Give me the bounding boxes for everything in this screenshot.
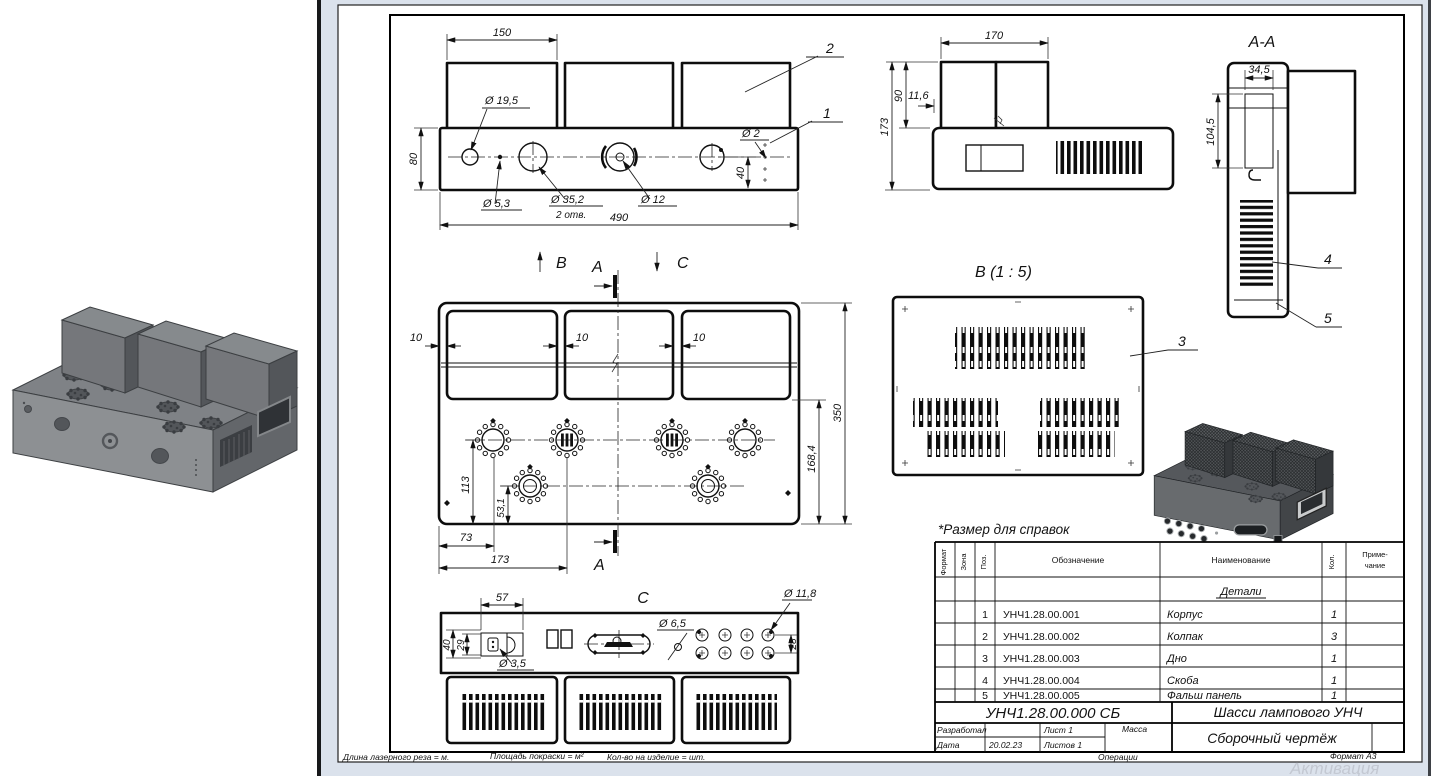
dim-gap1: 10	[410, 332, 423, 344]
date-value: 20.02.23	[988, 740, 1022, 750]
dim-34-5: 34,5	[1248, 64, 1270, 76]
section-aa-title: A-A	[1248, 34, 1276, 51]
dim-104-5: 104,5	[1205, 117, 1217, 145]
callout-5: 5	[1324, 310, 1332, 326]
callout-4: 4	[1324, 251, 1332, 267]
dim-150: 150	[493, 27, 512, 39]
watermark: Активация	[1289, 759, 1379, 776]
col-qty: Кол.	[1327, 555, 1336, 570]
dim-490: 490	[610, 212, 629, 224]
drawing-sheet-svg: 150 80 490 40 Ø 19,5 Ø 5,3 Ø 35,2 2 отв.…	[321, 0, 1431, 776]
row2-pos: 2	[982, 631, 988, 643]
dim-57: 57	[496, 592, 509, 604]
mass-label: Масса	[1122, 724, 1147, 734]
view-b-title: B (1 : 5)	[975, 264, 1032, 281]
dim-40-rear: 40	[442, 639, 453, 651]
product-render-3d	[0, 0, 321, 776]
footer-laser: Длина лазерного реза = м.	[342, 752, 449, 762]
row3-pos: 3	[982, 653, 988, 665]
footer-strip: Длина лазерного реза = м. Площадь покрас…	[342, 751, 705, 762]
mark-a-bottom: A	[593, 557, 605, 574]
row3-designation: УНЧ1.28.00.003	[1003, 653, 1080, 665]
col-name: Наименование	[1212, 555, 1271, 565]
dim-29: 29	[456, 639, 467, 652]
drawing-pane: 150 80 490 40 Ø 19,5 Ø 5,3 Ø 35,2 2 отв.…	[321, 0, 1431, 776]
col-note-2: чание	[1365, 561, 1386, 570]
col-format: Формат	[939, 548, 948, 575]
dim-173-top: 173	[491, 554, 510, 566]
row1-qty: 1	[1331, 609, 1337, 621]
dim-350: 350	[832, 403, 844, 422]
mark-c: C	[677, 255, 689, 272]
row4-name: Скоба	[1167, 675, 1199, 687]
callout-3: 3	[1178, 333, 1186, 349]
mark-b: B	[556, 255, 567, 272]
dim-173: 173	[879, 117, 891, 136]
dim-53-1: 53,1	[496, 498, 507, 517]
dia-2: Ø 2	[741, 128, 760, 140]
amplifier-isometric-render	[13, 307, 297, 492]
mark-a-top: A	[591, 259, 603, 276]
cad-drawing-screen: 150 80 490 40 Ø 19,5 Ø 5,3 Ø 35,2 2 отв.…	[0, 0, 1431, 776]
row1-pos: 1	[982, 609, 988, 621]
view-c-title: C	[637, 590, 649, 607]
row5-qty: 1	[1331, 690, 1337, 702]
row3-name: Дно	[1165, 653, 1187, 665]
dim-90: 90	[893, 89, 905, 102]
dim-11-6: 11,6	[908, 90, 929, 102]
row2-designation: УНЧ1.28.00.002	[1003, 631, 1080, 643]
row5-pos: 5	[982, 690, 988, 702]
col-designation: Обозначение	[1052, 555, 1105, 565]
dim-80: 80	[408, 152, 420, 165]
row4-pos: 4	[982, 675, 988, 687]
row1-designation: УНЧ1.28.00.001	[1003, 609, 1080, 621]
row2-qty: 3	[1331, 631, 1338, 643]
dia-12: Ø 12	[640, 194, 665, 206]
dim-40: 40	[735, 166, 747, 179]
row3-qty: 1	[1331, 653, 1337, 665]
row2-name: Колпак	[1167, 631, 1204, 643]
sheets-label: Листов 1	[1043, 740, 1082, 750]
row4-qty: 1	[1331, 675, 1337, 687]
render-pane	[0, 0, 321, 776]
row1-name: Корпус	[1167, 609, 1203, 621]
doc-number: УНЧ1.28.00.000 СБ	[985, 705, 1121, 722]
footer-qty: Кол-во на изделие = шт.	[607, 752, 705, 762]
dim-gap2: 10	[576, 332, 589, 344]
row5-designation: УНЧ1.28.00.005	[1003, 690, 1080, 702]
dim-gap3: 10	[693, 332, 706, 344]
group-label: Детали	[1218, 586, 1261, 598]
doc-type: Сборочный чертёж	[1207, 730, 1338, 746]
product-title: Шасси лампового УНЧ	[1214, 704, 1363, 720]
callout-1: 1	[823, 105, 831, 121]
dim-170: 170	[985, 30, 1004, 42]
dim-168-4: 168,4	[806, 445, 818, 473]
dim-73: 73	[460, 532, 473, 544]
date-label: Дата	[936, 740, 960, 750]
developed-label: Разработал	[937, 725, 987, 735]
dia-5-3: Ø 5,3	[482, 198, 511, 210]
dim-28: 28	[788, 638, 799, 651]
dia-19-5: Ø 19,5	[484, 95, 519, 107]
reference-note: *Размер для справок	[938, 522, 1070, 537]
dia-35-2-qty: 2 отв.	[555, 210, 586, 221]
row4-designation: УНЧ1.28.00.004	[1003, 675, 1080, 687]
col-note-1: Приме-	[1362, 550, 1388, 559]
sheet-label: Лист 1	[1043, 725, 1073, 735]
col-zone: Зона	[959, 553, 968, 571]
dia-6-5: Ø 6,5	[658, 618, 687, 630]
footer-paint: Площадь покраски = м²	[490, 751, 585, 761]
dim-113: 113	[460, 475, 472, 493]
dia-11-8: Ø 11,8	[783, 588, 817, 600]
col-pos: Поз.	[979, 555, 988, 570]
callout-2: 2	[825, 40, 834, 56]
dia-3-5: Ø 3,5	[498, 658, 527, 670]
row5-name: Фальш панель	[1167, 690, 1242, 702]
dia-35-2: Ø 35,2	[550, 194, 584, 206]
operations-label: Операции	[1098, 752, 1138, 762]
